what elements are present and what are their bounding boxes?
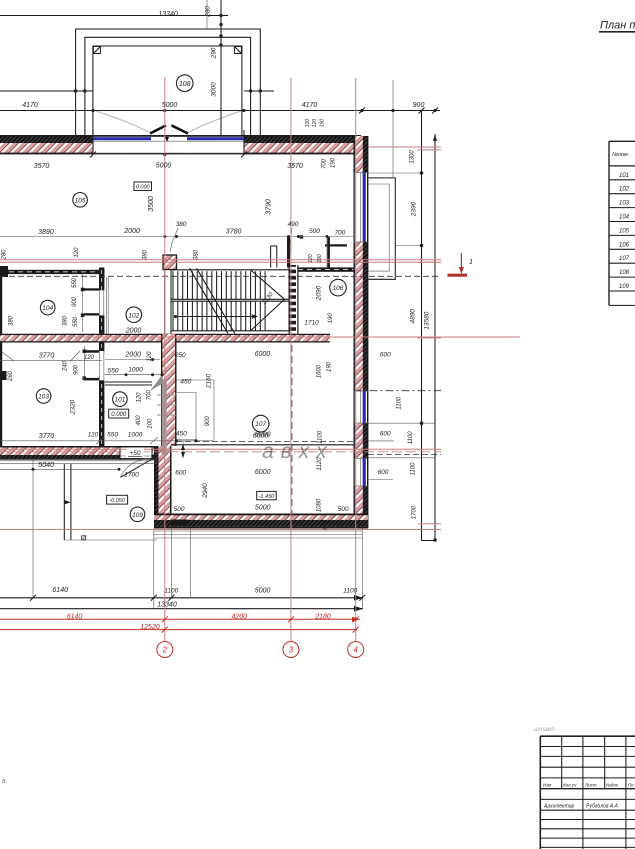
svg-text:1700: 1700 [412,505,418,519]
svg-text:190: 190 [331,157,337,168]
svg-text:12520: 12520 [140,624,160,631]
svg-text:120: 120 [137,392,143,403]
svg-text:2180: 2180 [314,613,331,620]
svg-text:2390: 2390 [411,201,418,217]
svg-text:1600: 1600 [317,364,323,378]
svg-text:6140: 6140 [52,587,68,594]
svg-text:3770: 3770 [39,433,55,440]
svg-text:450: 450 [176,431,187,438]
svg-text:3000: 3000 [211,82,218,97]
svg-text:104: 104 [619,215,630,221]
svg-text:700: 700 [147,390,153,401]
svg-text:3770: 3770 [39,353,55,360]
svg-text:1100: 1100 [411,462,417,476]
svg-text:120: 120 [84,355,95,361]
svg-text:4890: 4890 [410,309,417,324]
svg-text:1000: 1000 [128,432,143,439]
svg-text:5000: 5000 [255,588,271,595]
svg-text:600: 600 [378,469,389,476]
svg-text:120: 120 [308,254,314,263]
svg-text:5040: 5040 [38,462,54,469]
svg-text:Архитектор: Архитектор [543,804,574,810]
svg-text:120: 120 [147,351,153,362]
svg-text:500: 500 [309,228,320,235]
svg-text:6000: 6000 [255,432,271,439]
svg-text:1080: 1080 [317,498,323,512]
svg-text:290: 290 [211,47,218,59]
svg-text:190: 190 [320,119,326,128]
svg-text:500: 500 [174,506,185,513]
svg-text:190: 190 [328,313,334,324]
svg-text:штамп: штамп [534,727,555,733]
svg-text:280: 280 [205,6,212,18]
svg-text:550: 550 [73,316,79,327]
svg-text:260: 260 [8,370,14,382]
svg-text:109: 109 [132,512,143,519]
svg-text:100: 100 [148,418,154,429]
svg-text:3500: 3500 [148,196,155,212]
svg-text:103: 103 [38,394,49,401]
svg-text:380: 380 [8,315,14,326]
svg-text:3890: 3890 [38,229,54,236]
svg-text:3790: 3790 [266,199,273,215]
svg-text:1: 1 [469,259,473,266]
svg-text:380: 380 [176,221,187,228]
svg-text:102: 102 [128,312,139,319]
svg-text:600: 600 [380,431,391,438]
svg-text:2000: 2000 [123,228,140,235]
svg-text:380: 380 [193,249,199,260]
svg-text:105: 105 [75,197,86,204]
svg-text:1000: 1000 [128,367,143,374]
svg-text:1700: 1700 [124,472,139,479]
svg-text:Лист: Лист [584,783,597,788]
svg-text:6000: 6000 [255,469,271,476]
svg-text:13580: 13580 [423,311,430,329]
svg-text:3780: 3780 [226,229,242,236]
svg-text:2320: 2320 [70,399,77,415]
svg-text:380: 380 [63,315,69,326]
svg-text:1100: 1100 [408,431,414,445]
svg-text:101: 101 [114,397,125,404]
svg-text:2160: 2160 [206,373,213,389]
svg-text:280: 280 [2,249,8,261]
svg-text:106: 106 [619,242,630,248]
svg-text:авхх: авхх [262,440,334,463]
svg-text:0.000: 0.000 [111,412,127,418]
svg-text:550: 550 [72,277,78,288]
svg-text:1100: 1100 [343,588,357,595]
svg-text:104: 104 [42,305,53,312]
svg-text:-1.450: -1.450 [259,494,276,500]
svg-text:4: 4 [353,646,358,655]
svg-text:3570: 3570 [34,163,50,170]
svg-text:240: 240 [63,360,69,372]
svg-text:1710: 1710 [304,320,319,327]
svg-text:4200: 4200 [232,613,248,620]
svg-text:2940: 2940 [202,483,209,499]
svg-text:900: 900 [205,416,211,427]
svg-text:Рубайлов А.А: Рубайлов А.А [586,803,619,810]
svg-text:Кол.уч: Кол.уч [563,783,577,788]
svg-text:550: 550 [107,432,118,439]
svg-text:2000: 2000 [125,328,142,335]
svg-text:500: 500 [338,506,349,513]
svg-text:900: 900 [413,102,425,109]
svg-text:По: По [628,783,634,788]
svg-text:1100: 1100 [397,396,403,410]
svg-text:120: 120 [312,119,318,128]
svg-text:№пом: №пом [612,152,628,158]
svg-text:4170: 4170 [22,102,38,109]
svg-text:600: 600 [175,470,186,477]
svg-text:-0.050: -0.050 [109,498,126,504]
svg-text:600: 600 [380,352,391,359]
svg-text:450: 450 [180,379,191,386]
svg-text:105: 105 [619,228,630,234]
svg-text:120: 120 [88,433,99,439]
svg-text:План перв: План перв [600,20,635,32]
svg-text:100: 100 [305,119,311,128]
svg-text:600: 600 [323,519,329,530]
svg-text:5000: 5000 [156,163,172,170]
svg-text:6000: 6000 [255,351,271,358]
svg-text:190: 190 [317,254,323,263]
svg-text:106: 106 [333,285,344,292]
svg-text:4170: 4170 [302,102,318,109]
svg-text:400: 400 [136,415,142,426]
svg-text:108: 108 [619,270,630,276]
svg-text:120: 120 [74,247,80,258]
svg-text:103: 103 [619,201,630,207]
svg-text:700: 700 [335,230,346,237]
svg-text:1300: 1300 [410,150,416,164]
svg-text:109: 109 [619,284,630,290]
svg-text:900: 900 [73,364,79,375]
svg-text:490: 490 [288,221,299,228]
svg-text:5000: 5000 [255,505,271,512]
svg-text:Изм: Изм [543,783,551,788]
svg-text:13340: 13340 [158,11,178,18]
svg-text:5000: 5000 [162,102,178,109]
svg-text:№док: №док [606,783,619,788]
svg-text:13340: 13340 [157,602,177,609]
svg-text:3: 3 [289,646,294,655]
svg-text:700: 700 [322,158,328,169]
svg-text:107: 107 [255,421,266,428]
svg-text:2090: 2090 [316,285,323,301]
svg-text:в.: в. [2,778,8,785]
svg-text:101: 101 [619,173,629,179]
svg-text:550: 550 [108,368,119,375]
svg-text:1100: 1100 [164,588,178,595]
svg-text:380: 380 [142,249,148,260]
svg-text:102: 102 [619,187,630,193]
svg-text:250: 250 [174,352,186,359]
svg-text:0.000: 0.000 [136,185,151,191]
svg-text:900: 900 [72,296,78,307]
svg-text:2000: 2000 [124,352,141,359]
svg-text:2: 2 [162,646,168,655]
svg-text:108: 108 [179,81,191,88]
svg-text:190: 190 [326,361,332,372]
svg-text:107: 107 [619,256,630,262]
svg-text:6140: 6140 [67,613,83,620]
svg-text:3570: 3570 [287,163,303,170]
